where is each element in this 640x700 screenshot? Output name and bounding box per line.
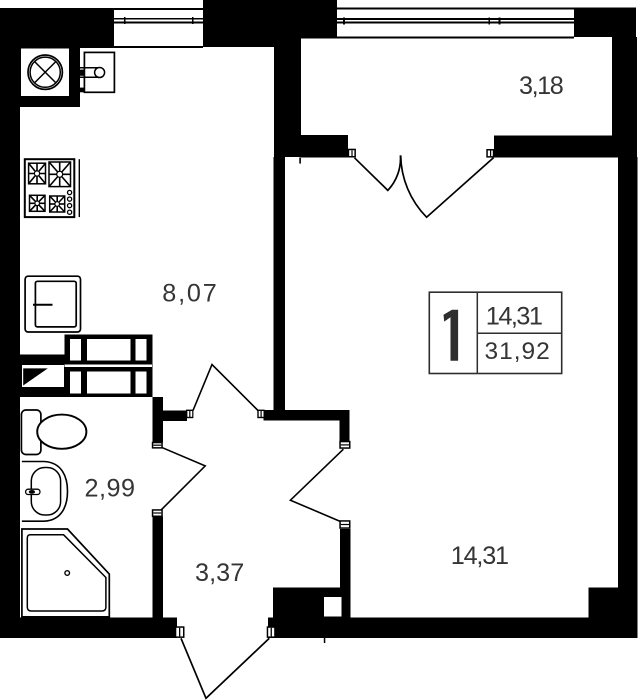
svg-text:3,37: 3,37	[195, 559, 244, 587]
svg-text:14,31: 14,31	[486, 303, 542, 331]
svg-text:14,31: 14,31	[451, 542, 508, 570]
svg-text:3,18: 3,18	[519, 72, 563, 100]
svg-text:2,99: 2,99	[84, 475, 135, 503]
svg-text:8,07: 8,07	[162, 280, 218, 308]
svg-text:31,92: 31,92	[485, 338, 551, 365]
